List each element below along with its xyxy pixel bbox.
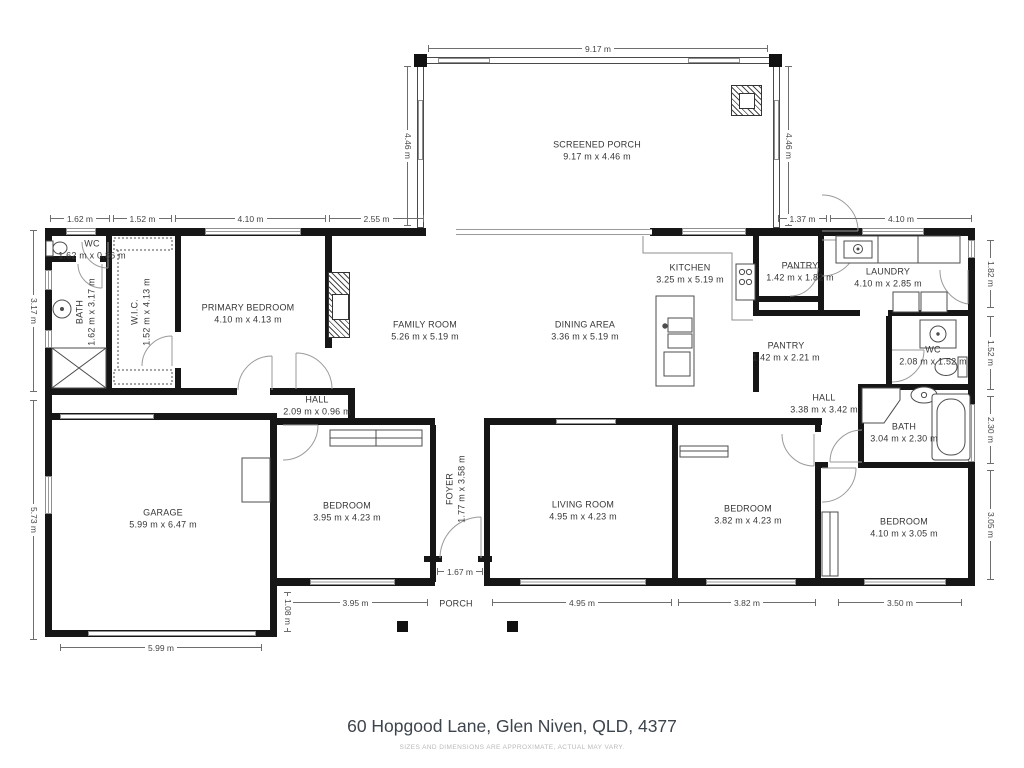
room-label-foyer: FOYER1.77 m x 3.58 m bbox=[445, 455, 468, 523]
dimension-right-3: 2.30 m bbox=[990, 396, 991, 464]
dimension-top-1: 1.62 m bbox=[50, 218, 110, 219]
room-label-hall-2: HALL3.38 m x 3.42 m bbox=[790, 393, 858, 416]
room-label-hall-1: HALL2.09 m x 0.96 m bbox=[283, 395, 351, 418]
dimension-left-2: 5.73 m bbox=[33, 400, 34, 640]
stove bbox=[736, 264, 755, 300]
room-label-pantry-1: PANTRY1.42 m x 1.82 m bbox=[766, 261, 834, 284]
room-label-dining-area: DINING AREA3.36 m x 5.19 m bbox=[551, 320, 619, 343]
dimension-top-6: 4.10 m bbox=[830, 218, 972, 219]
room-label-living-room: LIVING ROOM4.95 m x 4.23 m bbox=[549, 500, 617, 523]
room-label-family-room: FAMILY ROOM5.26 m x 5.19 m bbox=[391, 320, 459, 343]
washer bbox=[893, 292, 919, 312]
dimension-bottom-1: 3.95 m bbox=[283, 602, 428, 603]
dimension-bottom-2: 1.67 m bbox=[437, 571, 483, 572]
dimension-top-2: 1.52 m bbox=[113, 218, 172, 219]
dimension-porch-left: 4.46 m bbox=[407, 66, 408, 226]
fixtures-layer bbox=[0, 0, 1024, 768]
dimension-left-1: 3.17 m bbox=[33, 230, 34, 392]
room-label-bedroom-3: BEDROOM3.82 m x 4.23 m bbox=[714, 504, 782, 527]
room-label-wc: WC1.62 m x 0.86 m bbox=[58, 239, 126, 262]
dimension-top-5: 1.37 m bbox=[778, 218, 827, 219]
dimension-garage: 5.99 m bbox=[60, 647, 262, 648]
dimension-1-08: 1.08 m bbox=[287, 592, 288, 632]
room-label-wc-2: WC2.08 m x 1.52 m bbox=[899, 345, 967, 368]
dimension-bottom-3: 4.95 m bbox=[492, 602, 672, 603]
room-label-screened-porch: SCREENED PORCH9.17 m x 4.46 m bbox=[553, 140, 641, 163]
floor-plan: SCREENED PORCH9.17 m x 4.46 m WC1.62 m x… bbox=[0, 0, 1024, 768]
disclaimer-text: SIZES AND DIMENSIONS ARE APPROXIMATE, AC… bbox=[0, 744, 1024, 751]
room-label-pantry-2: PANTRY1.42 m x 2.21 m bbox=[752, 341, 820, 364]
room-label-laundry: LAUNDRY4.10 m x 2.85 m bbox=[854, 267, 922, 290]
dimension-top-4: 2.55 m bbox=[329, 218, 424, 219]
room-label-bath-2: BATH3.04 m x 2.30 m bbox=[870, 422, 938, 445]
dimension-bottom-5: 3.50 m bbox=[838, 602, 962, 603]
room-label-primary-bedroom: PRIMARY BEDROOM4.10 m x 4.13 m bbox=[202, 303, 295, 326]
address-title: 60 Hopgood Lane, Glen Niven, QLD, 4377 bbox=[0, 716, 1024, 737]
dimension-bottom-4: 3.82 m bbox=[678, 602, 816, 603]
dimension-top-3: 4.10 m bbox=[175, 218, 326, 219]
room-label-kitchen: KITCHEN3.25 m x 5.19 m bbox=[656, 263, 724, 286]
corner-shower bbox=[862, 388, 900, 423]
dimension-right-1: 1.82 m bbox=[990, 240, 991, 308]
toilet bbox=[46, 241, 53, 256]
dimension-right-2: 1.52 m bbox=[990, 316, 991, 390]
dryer bbox=[921, 292, 947, 312]
room-label-porch: PORCH bbox=[439, 598, 473, 610]
room-label-bath: BATH1.62 m x 3.17 m bbox=[75, 278, 98, 346]
dimension-porch-top: 9.17 m bbox=[428, 48, 768, 49]
room-label-bedroom-4: BEDROOM4.10 m x 3.05 m bbox=[870, 517, 938, 540]
utility-cabinet bbox=[242, 458, 270, 502]
dimension-porch-right: 4.46 m bbox=[788, 66, 789, 226]
room-label-bedroom-2: BEDROOM3.95 m x 4.23 m bbox=[313, 501, 381, 524]
door-arcs bbox=[78, 195, 968, 558]
island-sink bbox=[668, 318, 692, 332]
room-label-wic: W.I.C.1.52 m x 4.13 m bbox=[130, 278, 153, 346]
room-label-garage: GARAGE5.99 m x 6.47 m bbox=[129, 508, 197, 531]
dimension-right-4: 3.05 m bbox=[990, 470, 991, 580]
